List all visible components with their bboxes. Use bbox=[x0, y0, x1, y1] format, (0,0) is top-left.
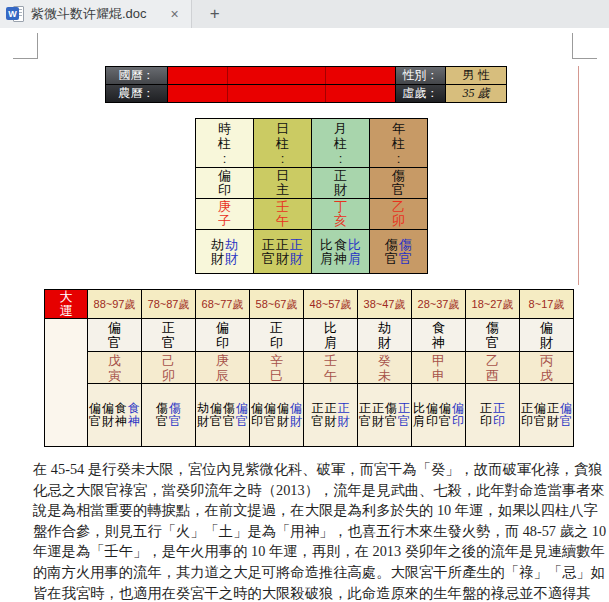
pillar-stem-branch: 庚 子 bbox=[196, 198, 253, 229]
birth-info-table: 國曆： 性別： 男 性 農曆： 虛歲： 35 歲 bbox=[105, 66, 507, 103]
lunar-date-cell bbox=[326, 85, 396, 102]
nominal-age-label: 虛歲： bbox=[396, 85, 446, 102]
hidden-stem-word: 偏 印 bbox=[452, 402, 464, 428]
four-pillars-table: 時 柱 :偏 印庚 子劫 財劫 財日 柱 :日 主壬 午正 官正 財正 財月 柱… bbox=[195, 118, 428, 274]
dayun-column-9: 8~17歲偏 財丙 戌正 印偏 官正 財偏 官 bbox=[519, 290, 573, 446]
pillar-column-4: 年 柱 :傷 官乙 卯傷 官傷 官 bbox=[369, 119, 427, 273]
hidden-stem-word: 偏 財 bbox=[290, 402, 302, 428]
pillar-header: 日 柱 : bbox=[254, 119, 311, 167]
pillar-header: 時 柱 : bbox=[196, 119, 253, 167]
dayun-ten-god: 食 神 bbox=[412, 318, 465, 351]
dayun-table: 大 運88~97歲偏 官戊 寅偏 官偏 財食 神食 神78~87歲正 官己 卯傷… bbox=[44, 289, 574, 447]
pillar-header: 年 柱 : bbox=[370, 119, 427, 167]
hidden-stem-word: 正 財 bbox=[276, 238, 289, 266]
pillar-column-3: 月 柱 :正 財丁 亥比 肩食 神比 肩 bbox=[311, 119, 369, 273]
paragraph-line: 年運是為「壬午」，是午火用事的 10 年運，再則，在 2013 癸卯年之後的流年… bbox=[33, 541, 581, 562]
new-tab-button[interactable]: + bbox=[204, 4, 226, 24]
hidden-stem-word: 正 印 bbox=[493, 402, 505, 428]
dayun-hidden-stems: 偏 官偏 財食 神食 神 bbox=[88, 383, 141, 446]
dayun-ten-god: 正 官 bbox=[142, 318, 195, 351]
dayun-column-6: 38~47歲劫 財癸 未正 官正 財傷 官正 官 bbox=[357, 290, 411, 446]
dayun-stem-branch: 壬 午 bbox=[304, 351, 357, 383]
solar-date-cell bbox=[168, 67, 228, 84]
dayun-hidden-stems: 正 印偏 官正 財偏 官 bbox=[520, 383, 573, 446]
hidden-stem-word: 正 財 bbox=[372, 402, 384, 428]
pillar-ten-god: 日 主 bbox=[254, 167, 311, 198]
dayun-ten-god: 偏 印 bbox=[196, 318, 249, 351]
hidden-stem-word: 傷 官 bbox=[223, 402, 235, 428]
pillar-hidden-stems: 比 肩食 神比 肩 bbox=[312, 229, 369, 273]
hidden-stem-word: 偏 印 bbox=[251, 402, 263, 428]
dayun-age-range: 88~97歲 bbox=[88, 290, 141, 318]
hidden-stem-word: 偏 財 bbox=[102, 402, 114, 428]
margin-mark-left-horizontal bbox=[13, 58, 38, 59]
paragraph-line: 化忌之大限官祿宮，當癸卯流年之時（2013），流年是見武曲、七殺，此年對命造當事… bbox=[33, 480, 581, 501]
dayun-stem-branch: 戊 寅 bbox=[88, 351, 141, 383]
pillar-hidden-stems: 劫 財劫 財 bbox=[196, 229, 253, 273]
dayun-hidden-stems: 偏 印偏 官偏 財偏 財 bbox=[250, 383, 303, 446]
hidden-stem-word: 正 財 bbox=[547, 402, 559, 428]
solar-date-cell bbox=[326, 67, 396, 84]
hidden-stem-word: 正 官 bbox=[312, 402, 324, 428]
hidden-stem-word: 正 財 bbox=[325, 402, 337, 428]
hidden-stem-word: 傷 官 bbox=[385, 402, 397, 428]
hidden-stem-word: 正 印 bbox=[521, 402, 533, 428]
dayun-stem-branch: 丙 戌 bbox=[520, 351, 573, 383]
hidden-stem-word: 正 財 bbox=[290, 238, 303, 266]
text-wrap-boundary-line bbox=[578, 66, 579, 285]
dayun-column-1: 88~97歲偏 官戊 寅偏 官偏 財食 神食 神 bbox=[87, 290, 141, 446]
pillar-ten-god: 正 財 bbox=[312, 167, 369, 198]
hidden-stem-word: 正 官 bbox=[359, 402, 371, 428]
dayun-column-2: 78~87歲正 官己 卯傷 官傷 官 bbox=[141, 290, 195, 446]
pillar-ten-god: 傷 官 bbox=[370, 167, 427, 198]
nominal-age-value: 35 歲 bbox=[446, 85, 506, 102]
hidden-stem-word: 偏 印 bbox=[426, 402, 438, 428]
solar-date-cell bbox=[228, 67, 326, 84]
hidden-stem-word: 偏 官 bbox=[534, 402, 546, 428]
hidden-stem-word: 傷 官 bbox=[169, 402, 181, 428]
dayun-hidden-stems: 傷 官傷 官 bbox=[142, 383, 195, 446]
hidden-stem-word: 正 官 bbox=[262, 238, 275, 266]
dayun-hidden-stems: 正 印正 印 bbox=[466, 383, 519, 446]
document-page: 國曆： 性別： 男 性 農曆： 虛歲： 35 歲 時 柱 :偏 印庚 子劫 財劫… bbox=[0, 28, 609, 602]
dayun-ten-god: 比 肩 bbox=[304, 318, 357, 351]
dayun-hidden-stems: 正 官正 財正 財 bbox=[304, 383, 357, 446]
hidden-stem-word: 正 財 bbox=[338, 402, 350, 428]
dayun-stem-branch: 己 卯 bbox=[142, 351, 195, 383]
dayun-stem-branch: 辛 巳 bbox=[250, 351, 303, 383]
hidden-stem-word: 比 肩 bbox=[320, 238, 333, 266]
dayun-column-5: 48~57歲比 肩壬 午正 官正 財正 財 bbox=[303, 290, 357, 446]
pillar-hidden-stems: 傷 官傷 官 bbox=[370, 229, 427, 273]
hidden-stem-word: 偏 官 bbox=[439, 402, 451, 428]
dayun-ten-god: 正 印 bbox=[250, 318, 303, 351]
margin-mark-right-horizontal bbox=[572, 58, 597, 59]
document-tab[interactable]: W 紫微斗数许耀焜.doc × bbox=[0, 0, 192, 28]
dayun-stem-branch: 癸 未 bbox=[358, 351, 411, 383]
hidden-stem-word: 食 神 bbox=[128, 402, 140, 428]
hidden-stem-word: 食 神 bbox=[115, 402, 127, 428]
dayun-stem-branch: 庚 辰 bbox=[196, 351, 249, 383]
dayun-title: 大 運 bbox=[45, 290, 87, 318]
word-document-icon: W bbox=[6, 5, 24, 23]
lunar-calendar-label: 農曆： bbox=[106, 85, 168, 102]
dayun-age-range: 28~37歲 bbox=[412, 290, 465, 318]
lunar-date-cell bbox=[228, 85, 326, 102]
lunar-date-cell bbox=[168, 85, 228, 102]
hidden-stem-word: 劫 財 bbox=[225, 238, 238, 266]
hidden-stem-word: 正 官 bbox=[398, 402, 410, 428]
pillar-column-2: 日 柱 :日 主壬 午正 官正 財正 財 bbox=[253, 119, 311, 273]
dayun-age-range: 18~27歲 bbox=[466, 290, 519, 318]
table-row: 國曆： 性別： 男 性 bbox=[106, 67, 506, 84]
pillar-ten-god: 偏 印 bbox=[196, 167, 253, 198]
hidden-stem-word: 偏 官 bbox=[264, 402, 276, 428]
dayun-age-range: 48~57歲 bbox=[304, 290, 357, 318]
dayun-hidden-stems: 比 肩偏 印偏 官偏 印 bbox=[412, 383, 465, 446]
dayun-ten-god: 劫 財 bbox=[358, 318, 411, 351]
dayun-age-range: 78~87歲 bbox=[142, 290, 195, 318]
hidden-stem-word: 偏 官 bbox=[210, 402, 222, 428]
dayun-ten-god: 偏 官 bbox=[88, 318, 141, 351]
dayun-ten-god: 偏 財 bbox=[520, 318, 573, 351]
pillar-stem-branch: 壬 午 bbox=[254, 198, 311, 229]
pillar-stem-branch: 乙 卯 bbox=[370, 198, 427, 229]
dayun-label-column: 大 運 bbox=[45, 290, 87, 446]
table-row: 農曆： 虛歲： 35 歲 bbox=[106, 84, 506, 102]
pillar-column-1: 時 柱 :偏 印庚 子劫 財劫 財 bbox=[196, 119, 253, 273]
margin-mark-right-vertical bbox=[572, 33, 573, 58]
dayun-age-range: 38~47歲 bbox=[358, 290, 411, 318]
hidden-stem-word: 比 肩 bbox=[413, 402, 425, 428]
dayun-ten-god: 傷 官 bbox=[466, 318, 519, 351]
tab-close-icon[interactable]: × bbox=[169, 6, 181, 22]
dayun-hidden-stems: 正 官正 財傷 官正 官 bbox=[358, 383, 411, 446]
pillar-header: 月 柱 : bbox=[312, 119, 369, 167]
hidden-stem-word: 偏 官 bbox=[560, 402, 572, 428]
solar-calendar-label: 國曆： bbox=[106, 67, 168, 84]
hidden-stem-word: 偏 官 bbox=[236, 402, 248, 428]
hidden-stem-word: 食 神 bbox=[334, 238, 347, 266]
gender-value: 男 性 bbox=[446, 67, 506, 84]
tab-bar: W 紫微斗数许耀焜.doc × + bbox=[0, 0, 609, 29]
pillar-stem-branch: 丁 亥 bbox=[312, 198, 369, 229]
hidden-stem-word: 偏 財 bbox=[277, 402, 289, 428]
paragraph-line: 盤作合參，則見五行「火」「土」是為「用神」，也喜五行木來生發火勢，而 48-57… bbox=[33, 521, 581, 542]
dayun-column-8: 18~27歲傷 官乙 酉正 印正 印 bbox=[465, 290, 519, 446]
hidden-stem-word: 傷 官 bbox=[156, 402, 168, 428]
hidden-stem-word: 比 肩 bbox=[348, 238, 361, 266]
gender-label: 性別： bbox=[396, 67, 446, 84]
dayun-column-7: 28~37歲食 神甲 申比 肩偏 印偏 官偏 印 bbox=[411, 290, 465, 446]
tab-title: 紫微斗数许耀焜.doc bbox=[31, 5, 147, 23]
dayun-age-range: 58~67歲 bbox=[250, 290, 303, 318]
paragraph-line: 皆在我宮時，也適用在癸宮干之時的大限殺破狼，此命造原來的生年盤的祿忌並不適得其 bbox=[33, 583, 581, 602]
dayun-hidden-stems: 劫 財偏 官傷 官偏 官 bbox=[196, 383, 249, 446]
hidden-stem-word: 正 印 bbox=[480, 402, 492, 428]
paragraph-line: 在 45-54 是行癸未大限，宮位內見紫微化科、破軍，而宮干為「癸」，故而破軍化… bbox=[33, 459, 581, 480]
hidden-stem-word: 傷 官 bbox=[385, 238, 398, 266]
hidden-stem-word: 偏 官 bbox=[89, 402, 101, 428]
dayun-empty-cell bbox=[45, 318, 87, 446]
hidden-stem-word: 劫 財 bbox=[211, 238, 224, 266]
hidden-stem-word: 傷 官 bbox=[399, 238, 412, 266]
dayun-stem-branch: 甲 申 bbox=[412, 351, 465, 383]
paragraph-line: 的南方火用事的流年，其力道之大足可將命造推往高處。大限宮干所產生的「祿」「忌」如 bbox=[33, 562, 581, 583]
paragraph-line: 說是為相當重要的轉捩點，在前文提過，在大限是為利多於失的 10 年運，如果以四柱… bbox=[33, 500, 581, 521]
margin-mark-left-vertical bbox=[37, 33, 38, 58]
dayun-column-3: 68~77歲偏 印庚 辰劫 財偏 官傷 官偏 官 bbox=[195, 290, 249, 446]
dayun-stem-branch: 乙 酉 bbox=[466, 351, 519, 383]
body-paragraph: 在 45-54 是行癸未大限，宮位內見紫微化科、破軍，而宮干為「癸」，故而破軍化… bbox=[33, 459, 581, 602]
pillar-hidden-stems: 正 官正 財正 財 bbox=[254, 229, 311, 273]
dayun-column-4: 58~67歲正 印辛 巳偏 印偏 官偏 財偏 財 bbox=[249, 290, 303, 446]
hidden-stem-word: 劫 財 bbox=[197, 402, 209, 428]
dayun-age-range: 68~77歲 bbox=[196, 290, 249, 318]
dayun-age-range: 8~17歲 bbox=[520, 290, 573, 318]
